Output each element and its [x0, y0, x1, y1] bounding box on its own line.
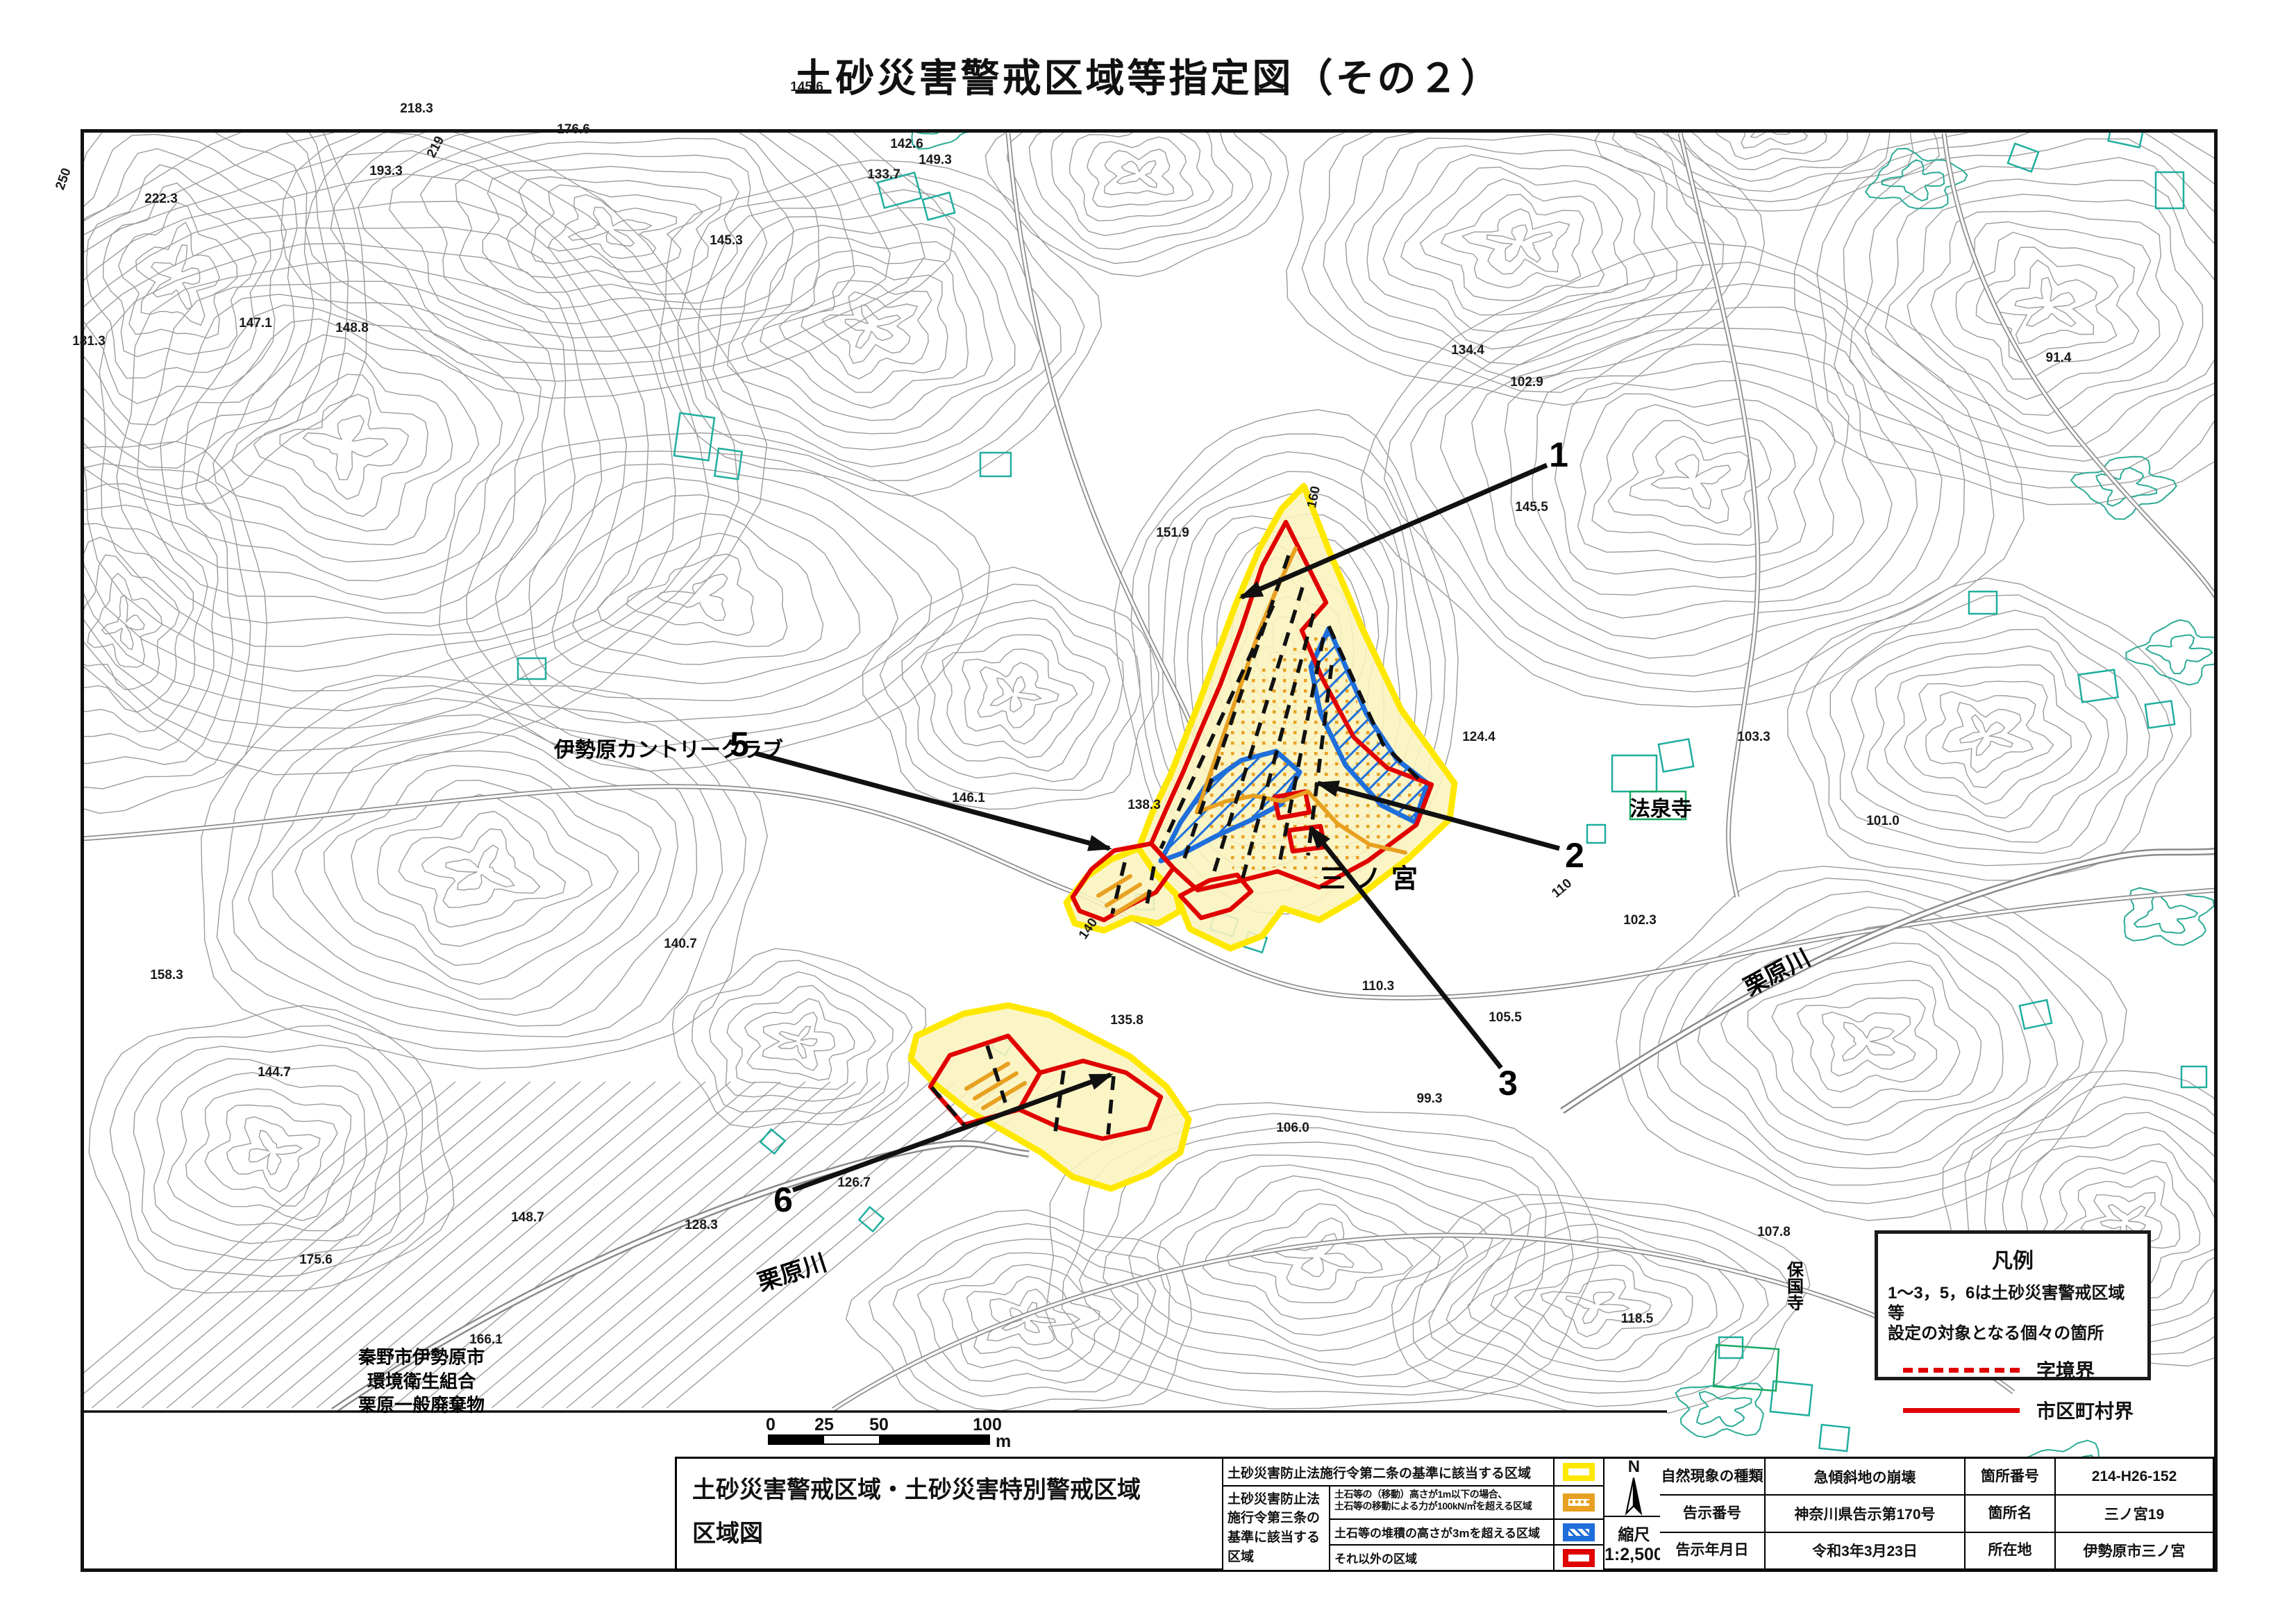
swatch-red-cell [1555, 1546, 1603, 1570]
site-name-label: 箇所名 [1966, 1496, 2054, 1531]
yellow-zone-swatch [1563, 1463, 1595, 1481]
red-dashed-line-sample [1903, 1368, 2020, 1373]
terraced-slope-lines [42, 1082, 1055, 1408]
other-area-row: それ以外の区域 [1330, 1546, 1553, 1570]
scale-label: 縮尺 [1618, 1521, 1650, 1545]
article3-group-label: 土砂災害防止法施行令第三条の基準に該当する区域 [1223, 1487, 1329, 1570]
red-zone-swatch [1563, 1549, 1595, 1567]
sheet-title-cell: 土砂災害警戒区域・土砂災害特別警戒区域 区域図 [677, 1459, 1222, 1568]
swatch-yellow-cell [1555, 1459, 1603, 1485]
scale-tick-0: 0 [766, 1415, 776, 1435]
orange-dots-swatch [1563, 1493, 1595, 1512]
scale-tick-50: 50 [869, 1415, 889, 1435]
notice-date-label: 告示年月日 [1660, 1533, 1764, 1568]
hazard-map-document: 土砂災害警戒区域等指定図（その２） [0, 0, 2296, 1624]
north-label: N [1628, 1459, 1640, 1475]
scale-value: 1:2,500 [1604, 1545, 1664, 1565]
zone-category-grid: 土砂災害防止法施行令第二条の基準に該当する区域 土砂災害防止法施行令第三条の基準… [1223, 1459, 1603, 1568]
sheet-title-line2: 区域図 [692, 1512, 1222, 1556]
scale-bar: 0 25 50 100 m [768, 1415, 1018, 1448]
legend-item-municipal-boundary: 市区町村界 [1888, 1396, 2138, 1424]
legend-title: 凡例 [1888, 1244, 2138, 1274]
location-label: 所在地 [1966, 1533, 2054, 1568]
scale-unit: m [996, 1432, 1011, 1452]
scale-cell: 縮尺 1:2,500 [1604, 1517, 1664, 1568]
phenomenon-type-value: 急傾斜地の崩壊 [1766, 1459, 1964, 1494]
hazard-zones [911, 486, 1455, 1189]
notice-date-value: 令和3年3月23日 [1766, 1533, 1964, 1568]
site-name-value: 三ノ宮19 [2056, 1496, 2213, 1531]
swatch-orange-cell [1555, 1487, 1603, 1518]
sheet-title-line1: 土砂災害警戒区域・土砂災害特別警戒区域 [692, 1468, 1222, 1512]
notice-number-value: 神奈川県告示第170号 [1766, 1496, 1964, 1531]
red-solid-line-sample [1903, 1408, 2020, 1413]
blue-hatch-swatch [1563, 1523, 1595, 1541]
article2-row: 土砂災害防止法施行令第二条の基準に該当する区域 [1223, 1459, 1553, 1485]
legend-note: 1～3，5，6は土砂災害警戒区域等 設定の対象となる個々の箇所 [1888, 1284, 2138, 1343]
title-block-table: 土砂災害警戒区域・土砂災害特別警戒区域 区域図 土砂災害防止法施行令第二条の基準… [675, 1457, 2215, 1571]
location-value: 伊勢原市三ノ宮 [2056, 1533, 2213, 1568]
designation-info-grid: 自然現象の種類 急傾斜地の崩壊 箇所番号 214-H26-152 告示番号 神奈… [1660, 1459, 2213, 1568]
legend-box: 凡例 1～3，5，6は土砂災害警戒区域等 設定の対象となる個々の箇所 字境界 市… [1875, 1230, 2151, 1380]
debris-force-row: 土石等の（移動）高さが1m以下の場合、 土石等の移動による力が100kN/㎡を超… [1330, 1487, 1553, 1518]
phenomenon-type-label: 自然現象の種類 [1660, 1459, 1764, 1494]
north-scale-column: N 縮尺 1:2,500 [1604, 1459, 1659, 1568]
scale-tick-25: 25 [814, 1415, 834, 1435]
north-arrow-icon [1620, 1475, 1648, 1516]
scale-bar-graphic [768, 1434, 990, 1445]
site-number-value: 214-H26-152 [2056, 1459, 2213, 1494]
deposit-row: 土石等の堆積の高さが3mを超える区域 [1330, 1520, 1553, 1544]
swatch-blue-cell [1555, 1520, 1603, 1544]
site-number-label: 箇所番号 [1966, 1459, 2054, 1494]
north-arrow-cell: N [1604, 1459, 1664, 1516]
notice-number-label: 告示番号 [1660, 1496, 1764, 1531]
legend-item-aza-boundary: 字境界 [1888, 1356, 2138, 1384]
